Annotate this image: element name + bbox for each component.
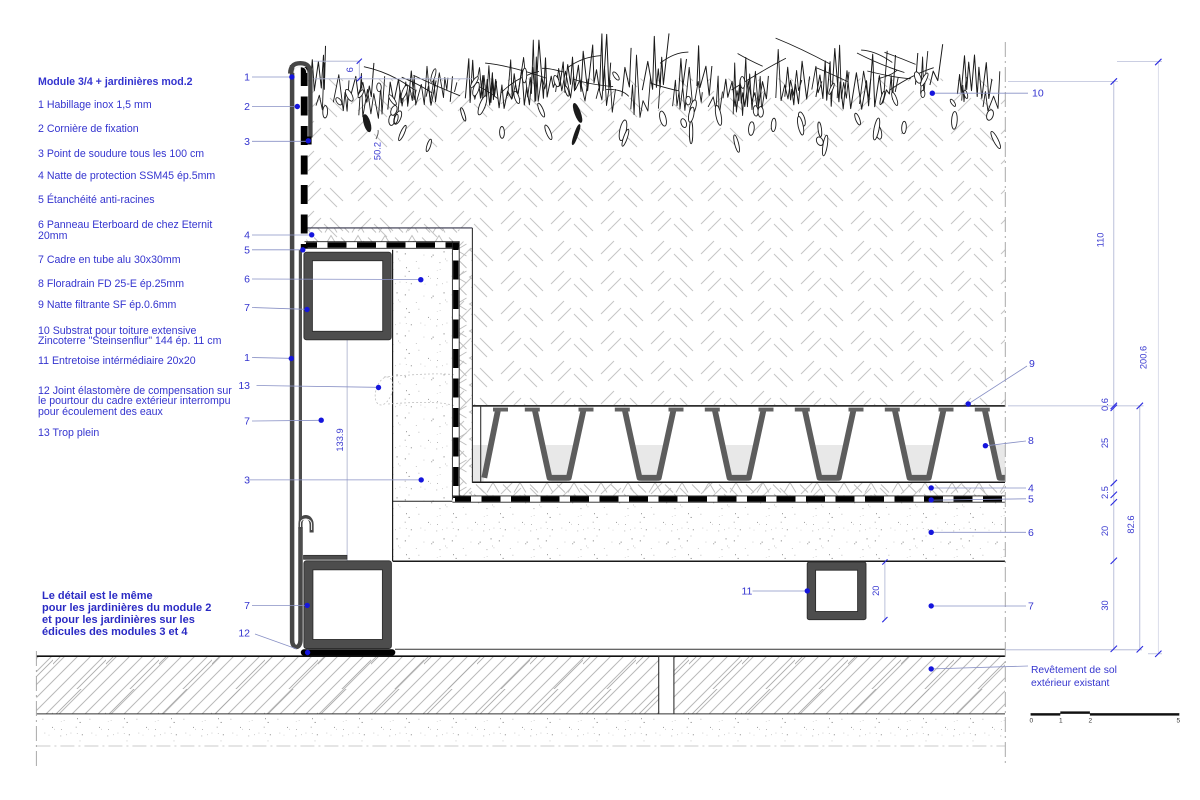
svg-text:82.6: 82.6: [1126, 515, 1136, 533]
svg-text:9: 9: [1029, 358, 1035, 370]
svg-text:25: 25: [1100, 438, 1110, 448]
svg-text:7: 7: [244, 302, 250, 314]
svg-text:50.2: 50.2: [373, 142, 383, 160]
svg-text:3: 3: [244, 474, 250, 486]
svg-text:11: 11: [742, 586, 753, 598]
svg-text:0.6: 0.6: [1100, 398, 1110, 411]
svg-text:20: 20: [871, 586, 881, 596]
svg-text:6: 6: [1028, 527, 1034, 539]
svg-text:13: 13: [238, 380, 250, 392]
svg-text:110: 110: [1095, 233, 1105, 248]
svg-text:1: 1: [244, 352, 250, 364]
svg-text:1: 1: [244, 72, 250, 84]
svg-text:6: 6: [345, 67, 355, 72]
svg-text:8: 8: [1028, 435, 1034, 447]
svg-text:2: 2: [1089, 718, 1093, 725]
svg-text:2: 2: [244, 101, 250, 113]
svg-text:1: 1: [1059, 718, 1063, 725]
svg-text:12: 12: [238, 628, 250, 640]
svg-text:7: 7: [244, 416, 250, 428]
svg-text:7: 7: [1028, 601, 1034, 613]
svg-text:10: 10: [1032, 88, 1044, 100]
svg-text:200.6: 200.6: [1139, 346, 1149, 369]
svg-text:2.5: 2.5: [1100, 486, 1110, 499]
svg-text:30: 30: [1100, 600, 1110, 610]
svg-text:0: 0: [1030, 718, 1034, 725]
svg-text:133.9: 133.9: [335, 428, 345, 451]
svg-text:4: 4: [244, 230, 250, 242]
svg-text:5: 5: [1028, 493, 1034, 505]
svg-text:5: 5: [244, 244, 250, 256]
svg-text:3: 3: [244, 136, 250, 148]
svg-text:6: 6: [244, 274, 250, 286]
svg-text:5: 5: [1177, 718, 1181, 725]
svg-text:20: 20: [1100, 526, 1110, 536]
svg-text:7: 7: [244, 600, 250, 612]
